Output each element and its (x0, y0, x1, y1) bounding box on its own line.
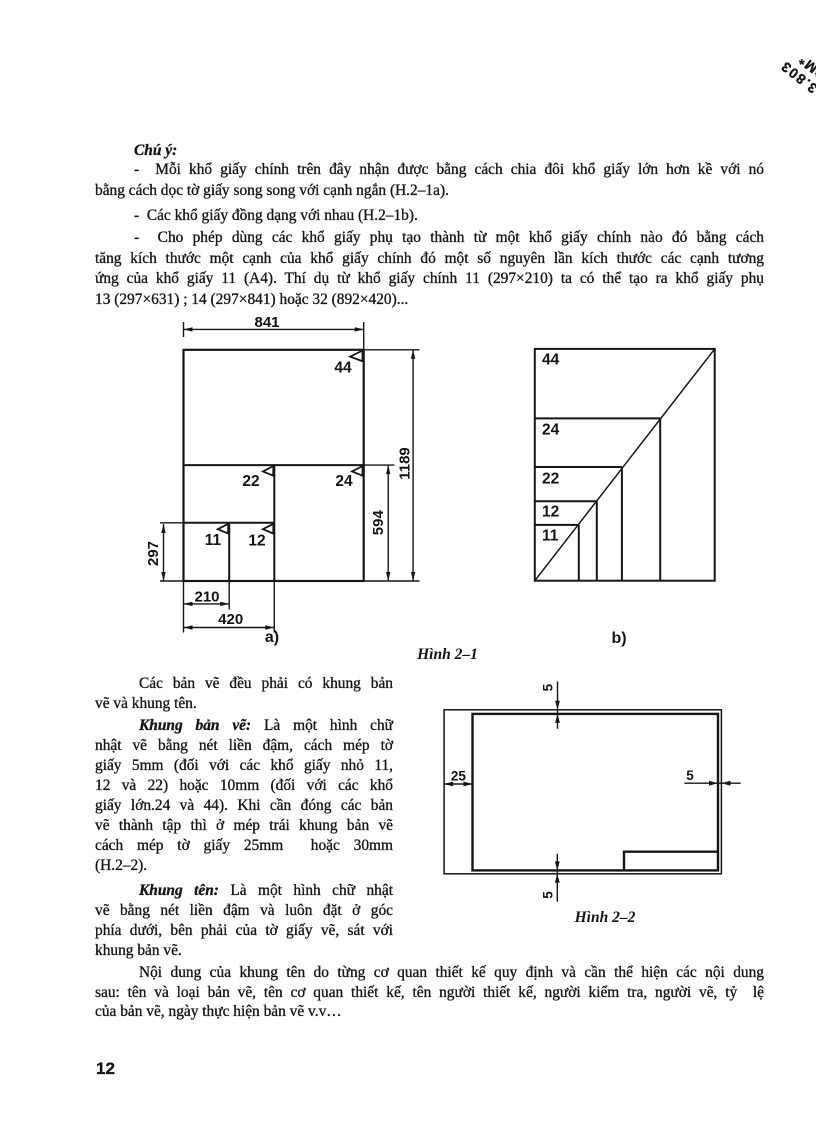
svg-text:Hình 2–1: Hình 2–1 (416, 646, 478, 663)
svg-text:22: 22 (242, 473, 259, 490)
svg-text:12: 12 (542, 504, 559, 521)
svg-text:b): b) (611, 630, 626, 647)
svg-text:5: 5 (686, 768, 694, 783)
svg-text:5: 5 (541, 891, 556, 899)
svg-text:11: 11 (205, 532, 222, 549)
svg-text:22: 22 (542, 471, 559, 488)
svg-text:11: 11 (542, 528, 559, 545)
svg-text:44: 44 (542, 352, 560, 369)
svg-text:594: 594 (370, 510, 387, 536)
svg-text:297: 297 (145, 541, 162, 566)
svg-text:Hình 2–2: Hình 2–2 (574, 909, 636, 926)
svg-text:25: 25 (451, 768, 467, 783)
svg-text:841: 841 (254, 314, 279, 331)
svg-text:420: 420 (218, 611, 243, 628)
svg-text:12: 12 (248, 533, 265, 550)
svg-text:24: 24 (542, 422, 560, 439)
svg-text:1189: 1189 (396, 447, 413, 480)
svg-text:44: 44 (334, 360, 352, 377)
svg-text:a): a) (265, 629, 279, 646)
svg-text:24: 24 (335, 473, 353, 490)
svg-text:5: 5 (541, 683, 556, 691)
svg-text:210: 210 (194, 589, 219, 606)
